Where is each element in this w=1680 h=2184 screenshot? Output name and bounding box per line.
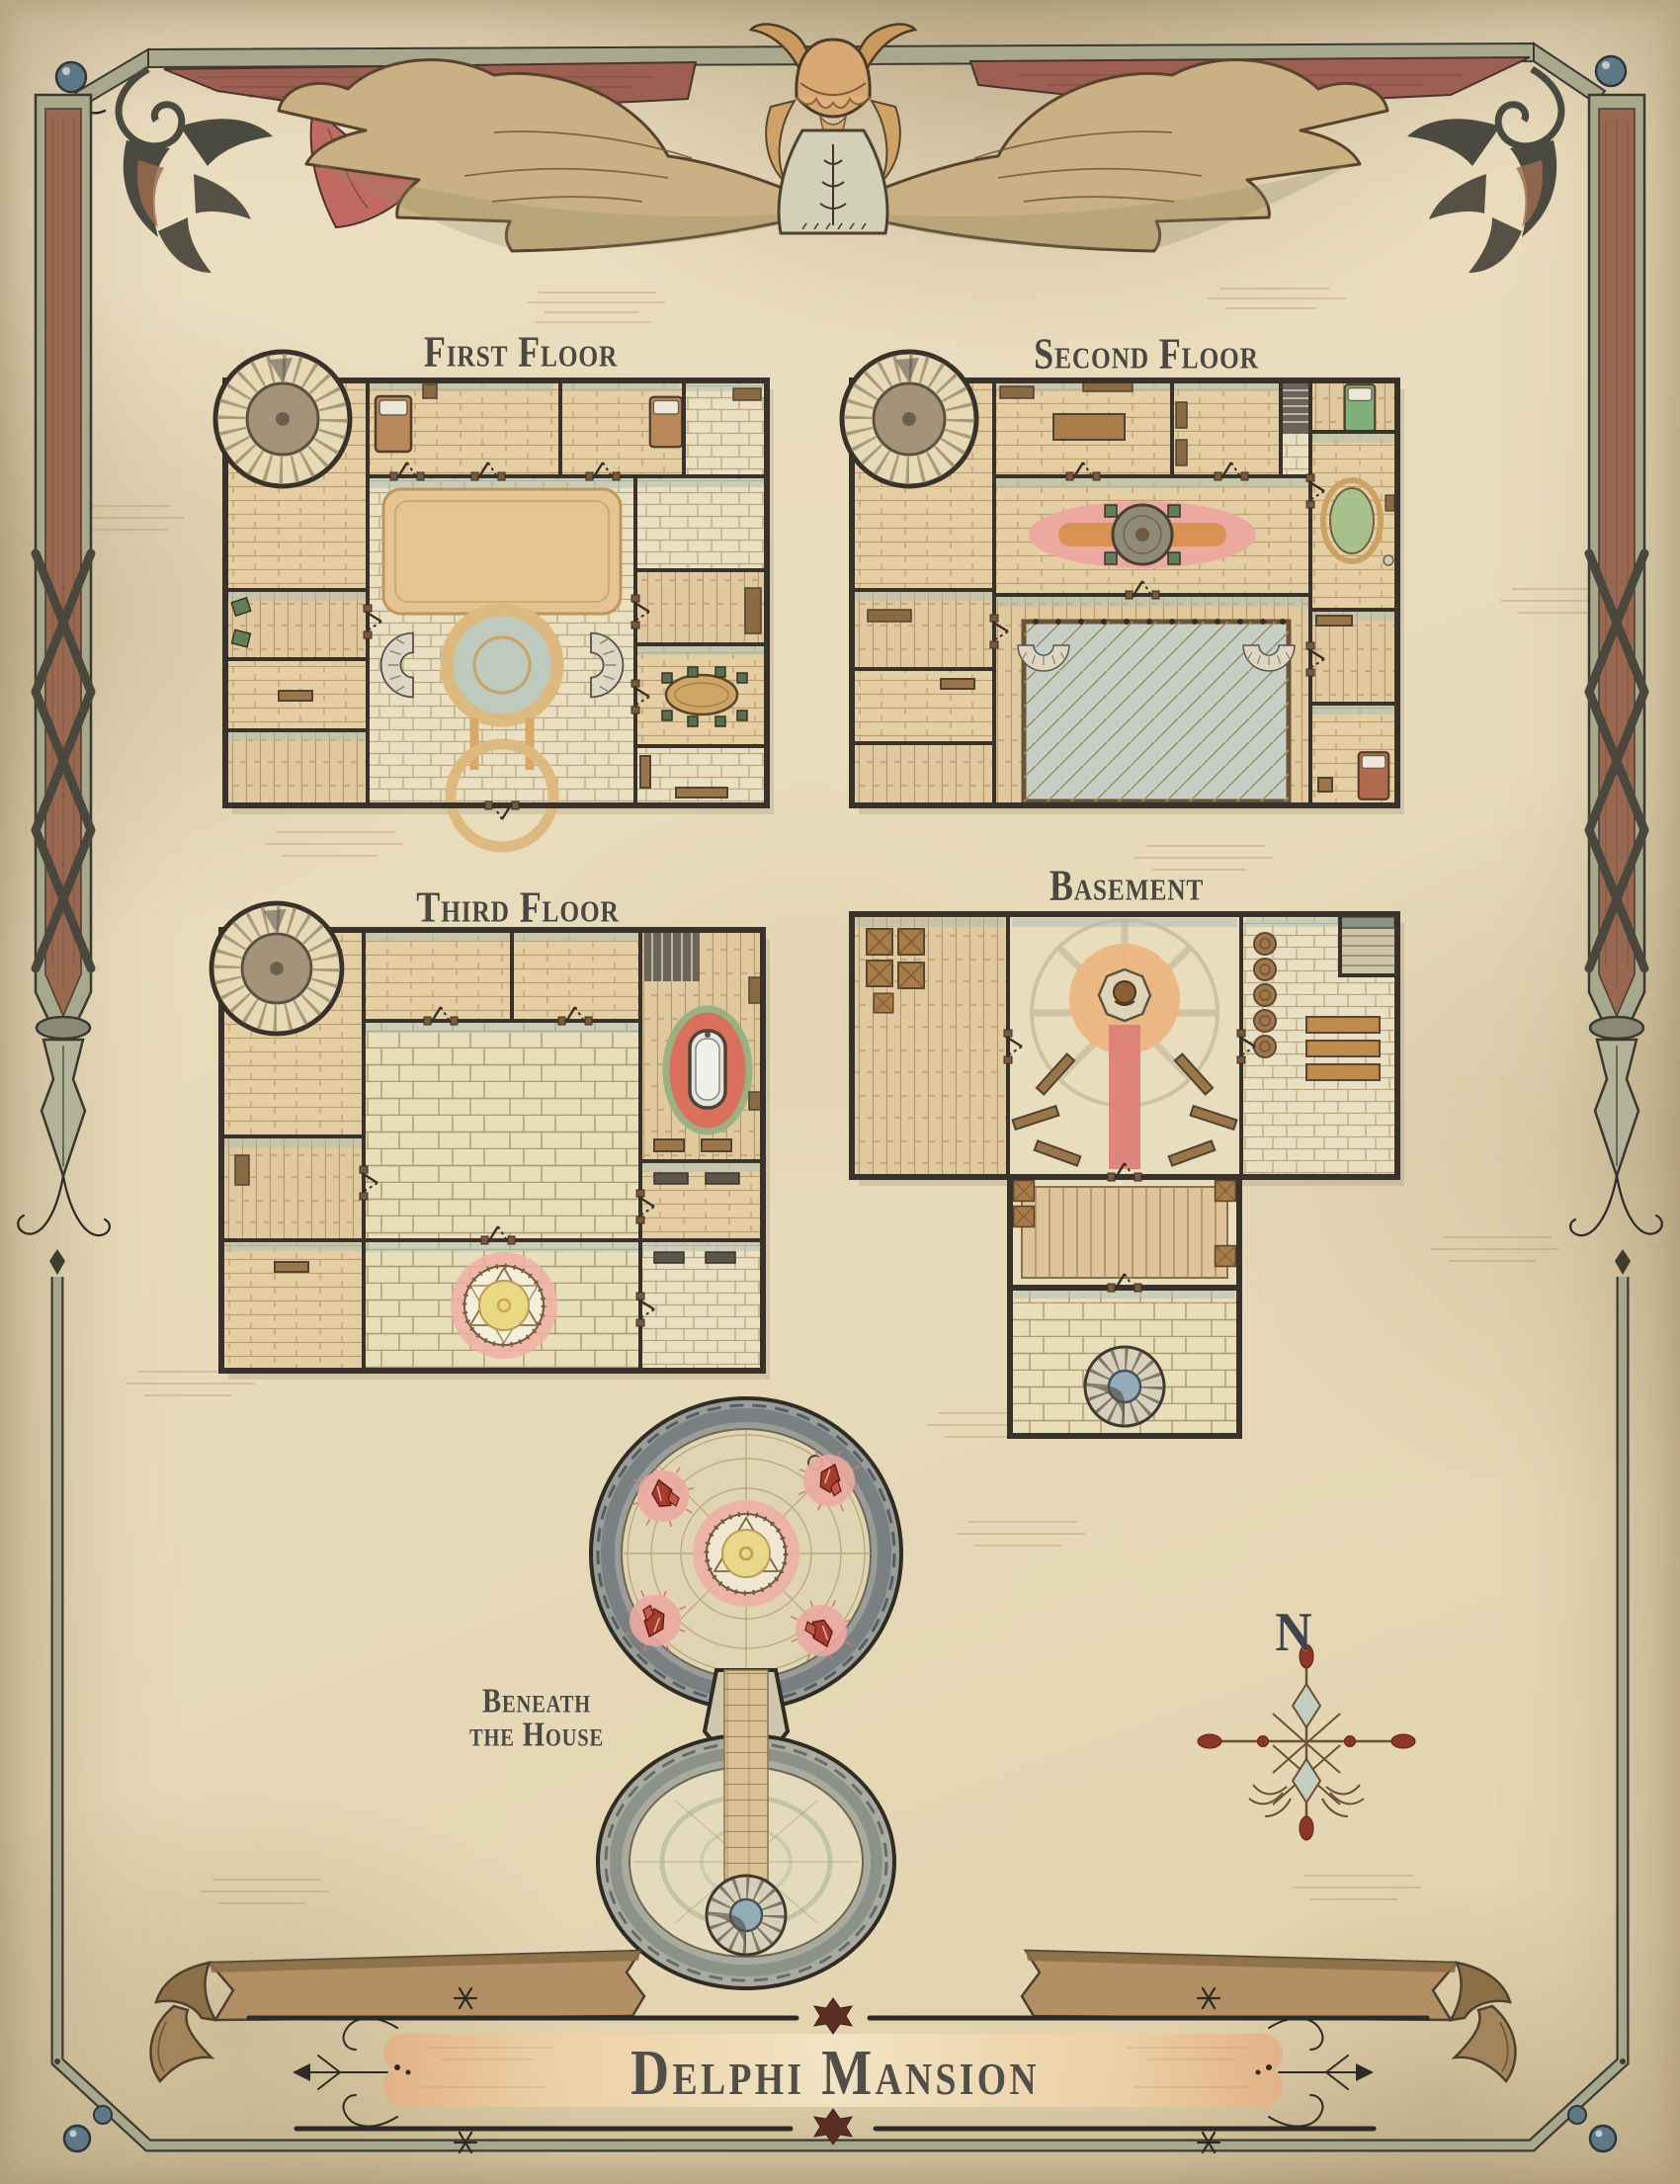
compass-rose	[1198, 1644, 1415, 1840]
stair-nook	[644, 932, 700, 981]
parchment-map-page: First Floor Second Floor Third Floor Bas…	[0, 0, 1680, 2184]
cave-ritual-circle	[693, 1500, 799, 1607]
first-floor-label: First Floor	[424, 327, 618, 378]
beneath-label-line2: the House	[469, 1719, 604, 1752]
atrium-overlook	[1018, 619, 1295, 801]
beneath-the-house-label: Beneath the House	[469, 1685, 604, 1753]
beneath-label-line1: Beneath	[469, 1685, 604, 1719]
bridge-corridor	[1014, 1181, 1236, 1278]
basement-label: Basement	[1050, 861, 1204, 911]
floorplan-second-floor	[842, 352, 1404, 814]
map-artwork	[0, 0, 1680, 2184]
cross-pattee-icon	[814, 1998, 852, 2034]
map-title: Delphi Mansion	[630, 2036, 1040, 2111]
floorplan-basement	[852, 914, 1404, 1436]
crystal-cavern	[591, 1398, 901, 1709]
floorplan-first-floor	[215, 352, 774, 847]
floorplan-third-floor	[211, 903, 770, 1380]
stair-nook	[1283, 382, 1308, 434]
cave-spiral-stair	[707, 1876, 786, 1955]
compass-north-label: N	[1275, 1601, 1311, 1664]
third-floor-label: Third Floor	[416, 882, 619, 933]
cave-beneath-the-house	[591, 1398, 901, 1988]
second-floor-label: Second Floor	[1034, 329, 1259, 379]
summoning-circle	[451, 1252, 557, 1359]
spiral-stair-well	[1085, 1347, 1164, 1426]
landing-hall	[1029, 501, 1256, 568]
